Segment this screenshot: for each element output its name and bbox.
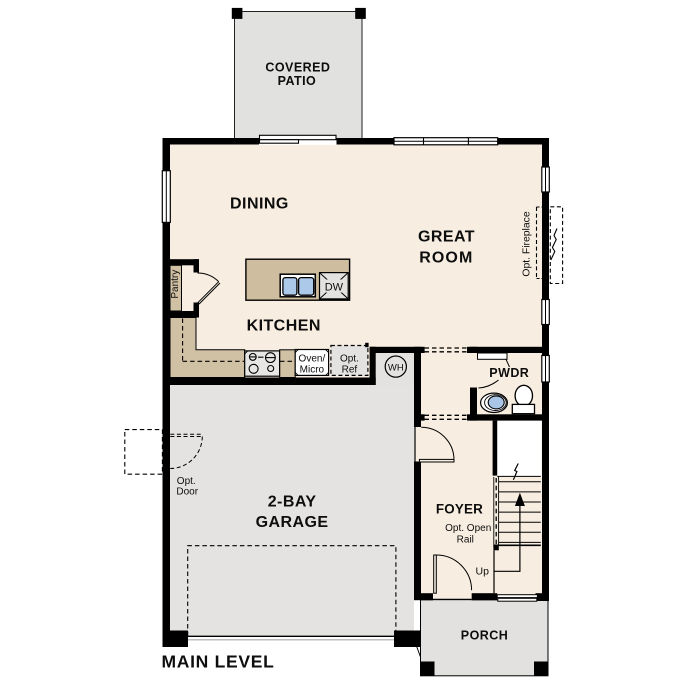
svg-text:PATIO: PATIO: [278, 74, 317, 88]
svg-text:GARAGE: GARAGE: [256, 514, 329, 531]
svg-text:MAIN LEVEL: MAIN LEVEL: [162, 652, 275, 672]
svg-text:Ref: Ref: [342, 365, 358, 376]
svg-text:FOYER: FOYER: [436, 501, 483, 516]
svg-text:DW: DW: [325, 282, 344, 294]
svg-text:Up: Up: [476, 565, 490, 577]
svg-text:DINING: DINING: [230, 195, 289, 212]
svg-text:Opt. Fireplace: Opt. Fireplace: [521, 211, 532, 276]
svg-text:ROOM: ROOM: [419, 249, 473, 266]
svg-text:Micro: Micro: [300, 365, 325, 376]
svg-text:Oven/: Oven/: [299, 353, 326, 364]
svg-text:Opt. Open: Opt. Open: [445, 523, 491, 534]
svg-text:GREAT: GREAT: [418, 229, 475, 246]
svg-text:2-BAY: 2-BAY: [268, 493, 317, 510]
svg-text:PWDR: PWDR: [489, 366, 529, 380]
svg-text:Opt.: Opt.: [340, 353, 359, 364]
svg-text:PORCH: PORCH: [461, 629, 508, 643]
svg-text:Door: Door: [176, 486, 198, 497]
svg-text:Opt.: Opt.: [177, 476, 196, 487]
svg-text:WH: WH: [388, 362, 404, 373]
svg-text:Pantry: Pantry: [170, 270, 181, 299]
svg-text:Rail: Rail: [457, 535, 474, 546]
svg-text:KITCHEN: KITCHEN: [247, 317, 321, 334]
svg-text:COVERED: COVERED: [265, 60, 330, 74]
